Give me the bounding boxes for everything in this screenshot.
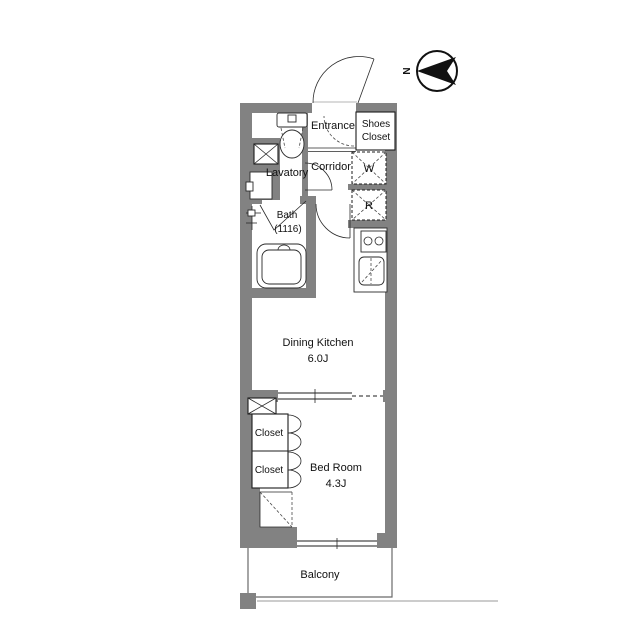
- dining-kitchen-label: Dining Kitchen: [283, 337, 354, 349]
- bath-faucet-valve: [248, 210, 255, 216]
- lavatory-label: Lavatory: [266, 167, 309, 179]
- wall-dk-bedroom-right: [383, 390, 397, 402]
- bathtub-inner: [262, 250, 301, 284]
- pipe-shaft-box: [254, 144, 278, 164]
- bedroom-label: Bed Room: [310, 462, 362, 474]
- closet-bottom-label: Closet: [255, 465, 284, 476]
- sliding-door: [278, 389, 383, 403]
- shoes-closet-box: [356, 112, 395, 150]
- closet-bifold-arc-2: [288, 433, 301, 451]
- kitchen: [354, 228, 387, 292]
- entrance-label: Entrance: [311, 120, 355, 132]
- toilet-bowl: [280, 130, 304, 158]
- dk-door-swing-arc: [316, 204, 350, 238]
- bath-size-label: (1116): [274, 224, 301, 235]
- closet-bifold-arc-4: [288, 470, 301, 488]
- bedroom-pipe-shaft-box: [248, 398, 276, 414]
- corner-shaft: [260, 492, 292, 527]
- entrance-door-leaf: [358, 59, 374, 103]
- north-arrow: N: [402, 51, 457, 91]
- entrance-door-swing-arc: [313, 56, 374, 103]
- balcony-window: [297, 538, 377, 549]
- closet-top-label: Closet: [255, 428, 284, 439]
- stove-icon: [361, 231, 386, 252]
- corridor-label: Corridor: [311, 161, 351, 173]
- floor-plan: Entrance Shoes Closet Corridor Lavatory: [0, 0, 640, 640]
- toilet-flush-button: [288, 115, 296, 122]
- shoes-closet: Shoes Closet: [356, 112, 395, 150]
- wall-bedroom-bottom-right: [377, 533, 397, 548]
- wall-bedroom-bottom-left: [240, 527, 297, 548]
- bedroom: Closet Closet Bed Room 4.3J: [248, 389, 383, 549]
- stove-top: [361, 231, 386, 252]
- wall-left: [240, 103, 252, 548]
- wall-washer-fridge-divider: [348, 184, 397, 190]
- bath: Bath (1116): [246, 201, 306, 288]
- bathtub-icon: [257, 244, 306, 288]
- bedroom-size-label: 4.3J: [326, 478, 347, 490]
- fridge-space: R: [352, 190, 386, 220]
- closet-bifold-arc-1: [288, 415, 301, 433]
- sink-icon: [359, 257, 384, 285]
- wall-bath-right: [306, 196, 316, 292]
- balcony: Balcony: [240, 548, 498, 609]
- wall-right: [385, 103, 397, 548]
- wall-top-left: [240, 103, 312, 113]
- fridge-label: R: [365, 200, 373, 212]
- bath-label: Bath: [277, 210, 298, 221]
- corridor: Corridor: [305, 161, 351, 190]
- balcony-pillar: [240, 593, 256, 609]
- balcony-label: Balcony: [300, 569, 340, 581]
- shoes-closet-label-line2: Closet: [362, 132, 391, 143]
- dining-kitchen-size-label: 6.0J: [308, 353, 329, 365]
- north-label: N: [402, 67, 413, 74]
- closet-bifold-arc-3: [288, 452, 301, 470]
- washer-label: W: [364, 163, 375, 175]
- washbasin-tap: [246, 182, 253, 191]
- wall-fridge-kitchen-divider: [348, 220, 397, 228]
- closets: Closet Closet: [252, 414, 301, 488]
- washer-space: W: [352, 152, 386, 184]
- shoes-closet-label-line1: Shoes: [362, 119, 390, 130]
- wall-bath-bottom: [252, 288, 316, 298]
